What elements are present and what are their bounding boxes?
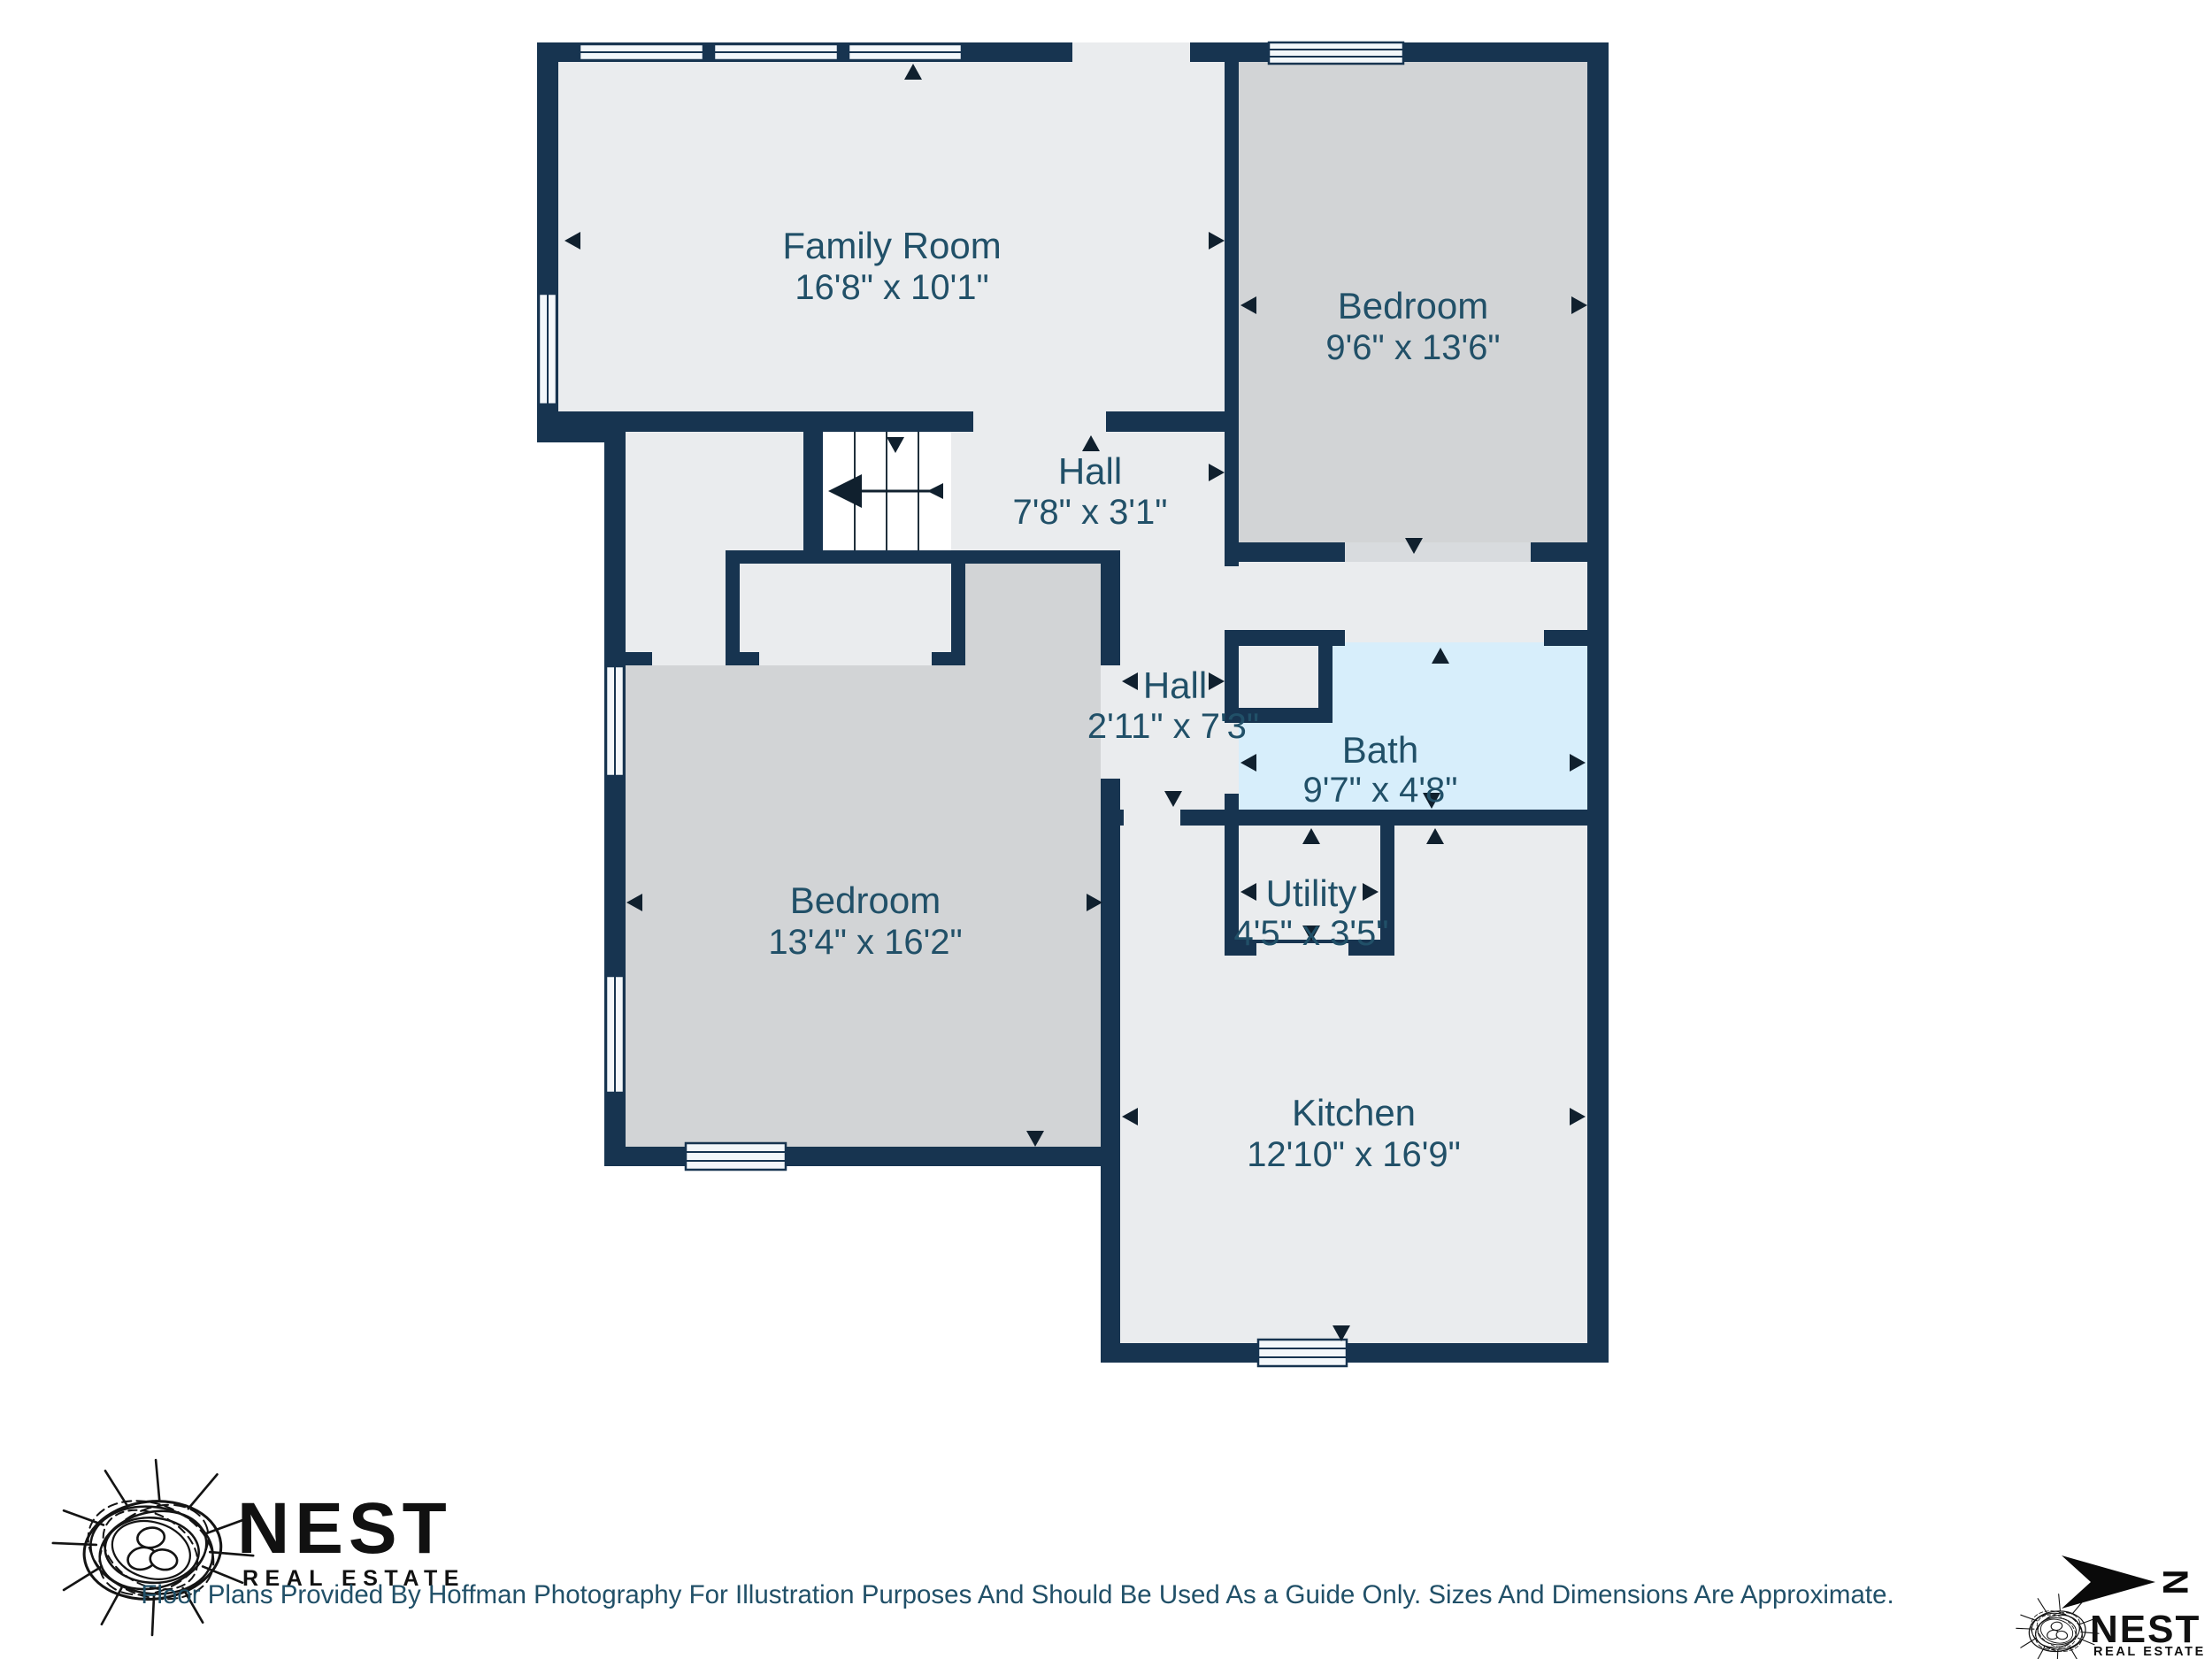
wall <box>1101 1343 1609 1363</box>
window <box>686 1143 786 1170</box>
door-opening <box>1345 542 1531 562</box>
room-label-utility: Utility <box>1266 872 1357 914</box>
closet-floor <box>740 564 951 665</box>
wall <box>932 652 965 665</box>
wall <box>604 652 652 665</box>
wall <box>1225 42 1239 566</box>
room-label-bath: Bath <box>1342 729 1418 771</box>
door-opening <box>973 411 1106 432</box>
room-label-kitchen: Kitchen <box>1292 1092 1416 1133</box>
window <box>539 294 557 404</box>
room-label-bedroom-right: Bedroom <box>1338 285 1488 326</box>
bedroom-entry-floor <box>965 564 1101 665</box>
disclaimer-text: Floor Plans Provided By Hoffman Photogra… <box>141 1580 1893 1609</box>
window <box>580 44 703 60</box>
wall <box>1544 630 1587 646</box>
window <box>606 976 624 1093</box>
room-dims-hall-upper: 7'8" x 3'1" <box>1013 493 1168 532</box>
wall <box>537 411 1239 432</box>
floor-plan-canvas: Family Room 16'8" x 10'1" Bedroom 9'6" x… <box>0 0 2212 1659</box>
floor-plan-page: Family Room 16'8" x 10'1" Bedroom 9'6" x… <box>0 0 2212 1659</box>
room-dims-family-room: 16'8" x 10'1" <box>795 268 988 307</box>
room-label-hall-corridor: Hall <box>1143 664 1207 706</box>
wall <box>951 550 965 665</box>
wall <box>1318 630 1333 718</box>
room-dims-bath: 9'7" x 4'8" <box>1303 771 1458 810</box>
window <box>714 44 838 60</box>
compass-arrow-icon <box>2062 1555 2155 1609</box>
nest-icon <box>2016 1594 2099 1659</box>
room-label-bedroom-left: Bedroom <box>790 879 941 921</box>
room-dims-bedroom-right: 9'6" x 13'6" <box>1325 328 1500 367</box>
wall <box>726 652 759 665</box>
room-dims-hall-corridor: 2'11" x 7'3" <box>1087 707 1259 746</box>
compass: N <box>2062 1555 2194 1609</box>
room-dims-kitchen: 12'10" x 16'9" <box>1247 1135 1461 1174</box>
window <box>1269 42 1403 64</box>
room-dims-bedroom-left: 13'4" x 16'2" <box>768 923 962 962</box>
wall <box>726 550 740 665</box>
wall <box>1225 794 1239 826</box>
wall <box>1587 42 1609 1363</box>
window <box>606 666 624 776</box>
window <box>1258 1340 1347 1366</box>
staircase <box>823 432 951 550</box>
logo-subtitle-small: REAL ESTATE <box>2093 1645 2206 1659</box>
wall <box>726 550 1120 564</box>
nest-logo-small: NEST REAL ESTATE <box>2016 1594 2206 1659</box>
compass-north-label: N <box>2155 1570 2194 1595</box>
door-opening <box>1124 810 1180 826</box>
window <box>849 44 962 60</box>
logo-title: NEST <box>237 1488 452 1569</box>
room-dims-utility: 4'5" x 3'5" <box>1234 914 1389 953</box>
wall <box>803 432 823 564</box>
wall <box>604 1147 1120 1166</box>
room-label-family-room: Family Room <box>782 225 1001 266</box>
room-label-hall-upper: Hall <box>1058 450 1122 492</box>
door-opening <box>1072 42 1190 62</box>
